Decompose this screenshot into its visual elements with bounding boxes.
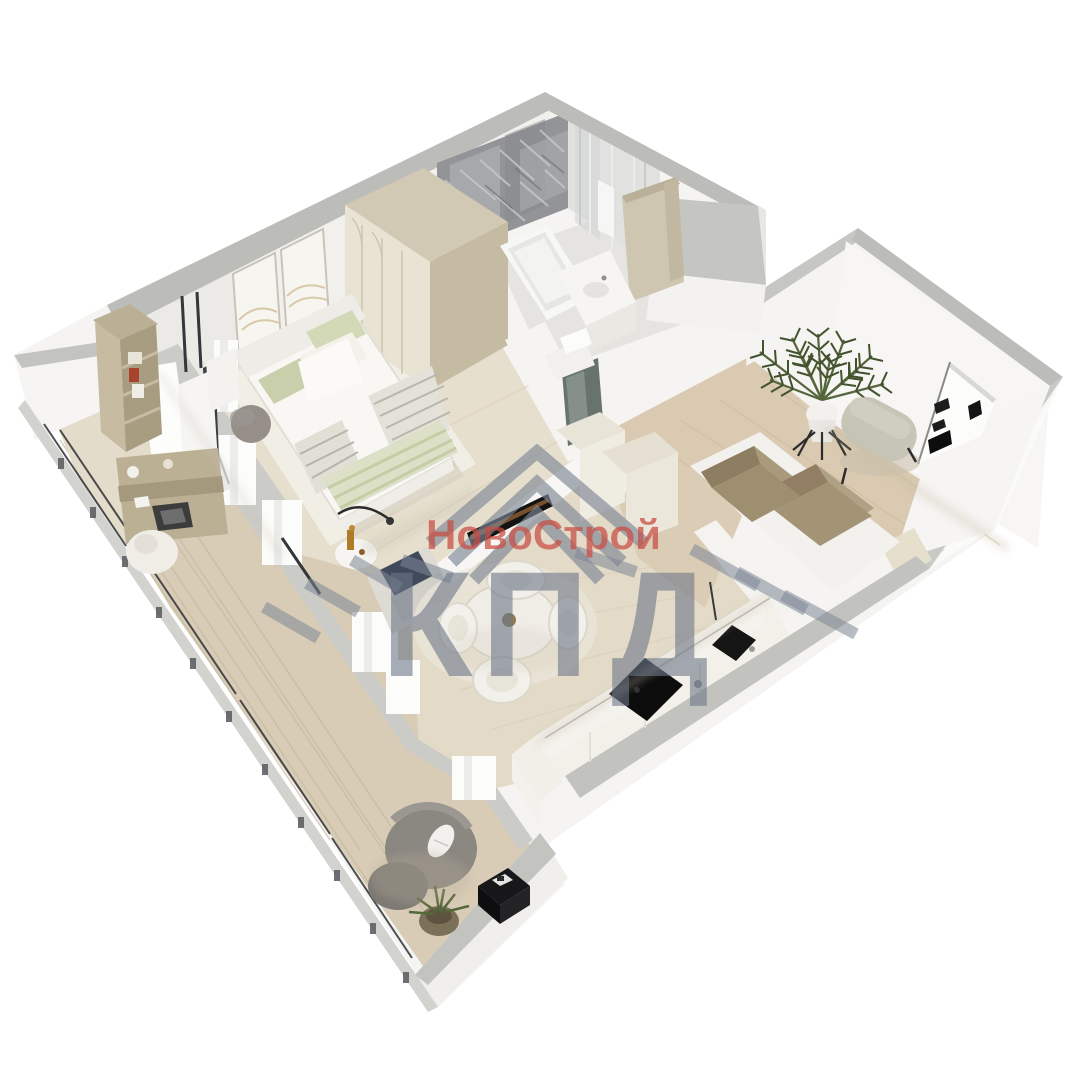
svg-text:Д: Д bbox=[611, 541, 709, 709]
svg-text:П: П bbox=[481, 540, 589, 708]
svg-text:К: К bbox=[381, 540, 473, 708]
